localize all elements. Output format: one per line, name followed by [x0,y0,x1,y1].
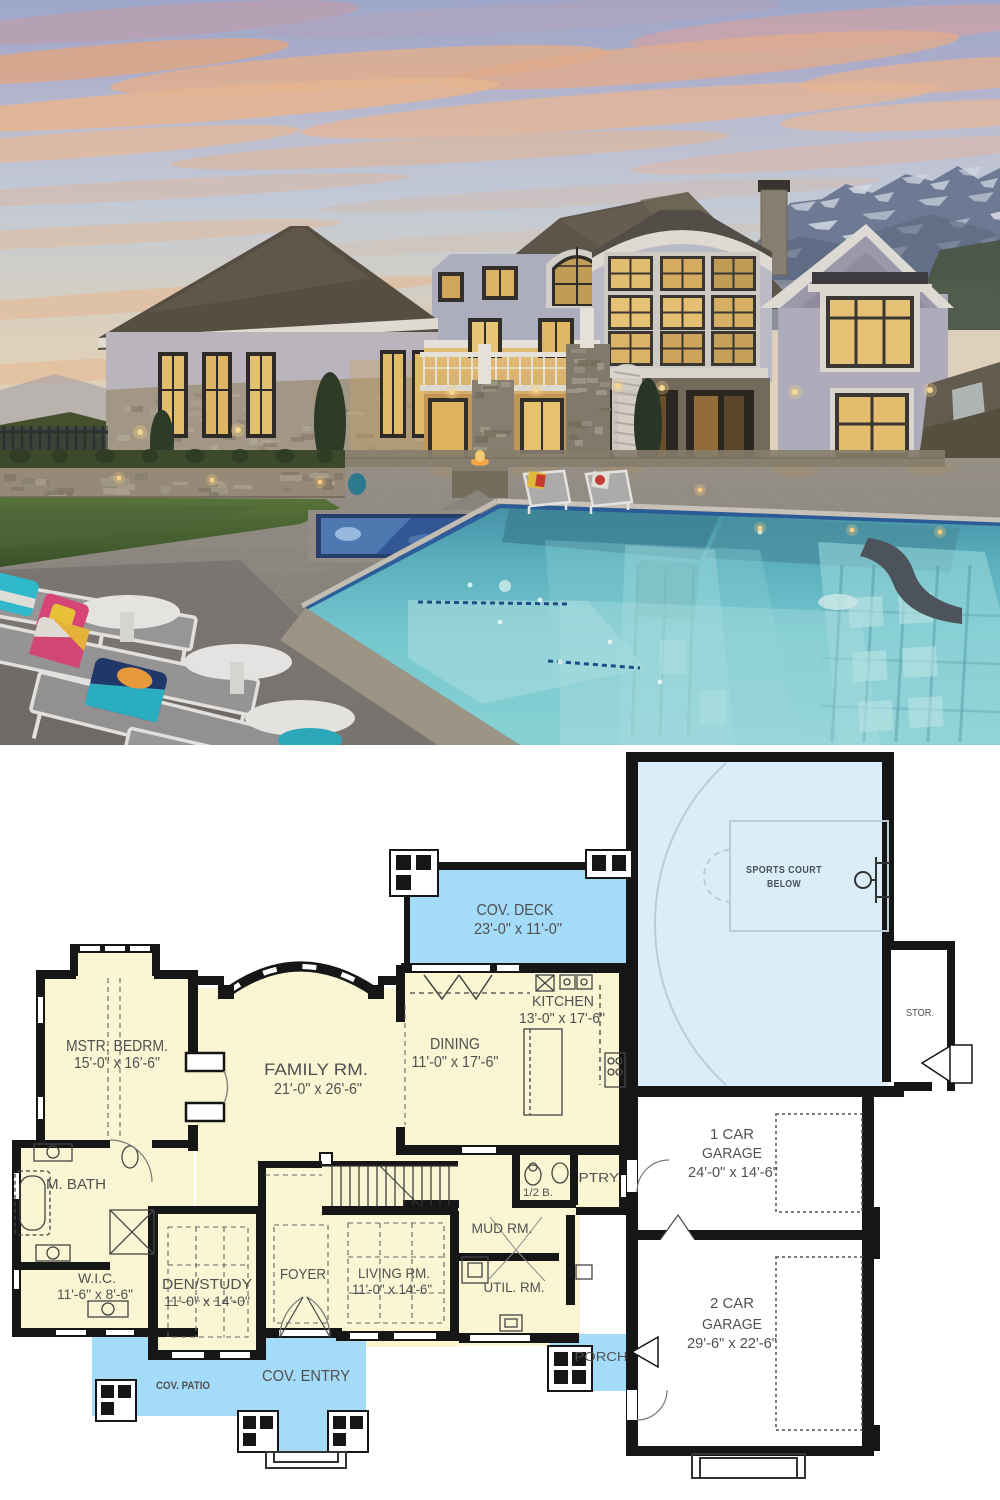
svg-text:1/2 B.: 1/2 B. [523,1187,553,1199]
svg-text:GARAGE: GARAGE [702,1316,762,1333]
svg-text:11'-0" x 14'-6": 11'-0" x 14'-6" [352,1282,432,1297]
svg-text:PORCH: PORCH [575,1350,628,1364]
svg-text:1 CAR: 1 CAR [710,1126,754,1143]
svg-text:23'-0" x 11'-0": 23'-0" x 11'-0" [474,921,562,938]
svg-text:M. BATH: M. BATH [46,1176,106,1193]
svg-text:15'-0" x 16'-6": 15'-0" x 16'-6" [74,1055,160,1072]
svg-text:MUD RM.: MUD RM. [472,1221,533,1236]
svg-text:21'-0" x 26'-6": 21'-0" x 26'-6" [274,1081,362,1098]
svg-text:11'-6" x 8'-6": 11'-6" x 8'-6" [57,1287,133,1302]
svg-text:COV. DECK: COV. DECK [477,902,554,919]
svg-text:STOR.: STOR. [906,1007,934,1019]
svg-text:KITCHEN: KITCHEN [532,993,594,1010]
svg-text:SPORTS COURT: SPORTS COURT [746,864,822,876]
svg-text:GARAGE: GARAGE [702,1145,762,1162]
svg-text:13'-0" x 17'-6": 13'-0" x 17'-6" [519,1010,605,1027]
svg-text:11'-0" x 14'-0": 11'-0" x 14'-0" [164,1293,250,1309]
svg-text:BELOW: BELOW [767,878,801,890]
svg-text:W.I.C.: W.I.C. [78,1270,116,1286]
svg-text:29'-6" x 22'-6": 29'-6" x 22'-6" [687,1335,777,1352]
svg-text:FAMILY RM.: FAMILY RM. [264,1060,368,1079]
svg-text:24'-0" x 14'-6": 24'-0" x 14'-6" [688,1164,778,1181]
svg-text:LIVING RM.: LIVING RM. [358,1265,430,1281]
svg-text:FOYER: FOYER [280,1267,326,1283]
svg-text:11'-0" x 17'-6": 11'-0" x 17'-6" [412,1054,499,1071]
svg-text:DINING: DINING [430,1036,480,1053]
svg-text:UTIL. RM.: UTIL. RM. [484,1280,545,1295]
svg-text:MSTR. BEDRM.: MSTR. BEDRM. [66,1038,168,1055]
svg-text:PTRY.: PTRY. [579,1171,622,1185]
svg-text:COV. ENTRY: COV. ENTRY [262,1368,350,1385]
svg-text:COV. PATIO: COV. PATIO [156,1380,210,1392]
svg-text:DEN/STUDY: DEN/STUDY [162,1276,252,1293]
svg-text:2 CAR: 2 CAR [710,1295,754,1312]
